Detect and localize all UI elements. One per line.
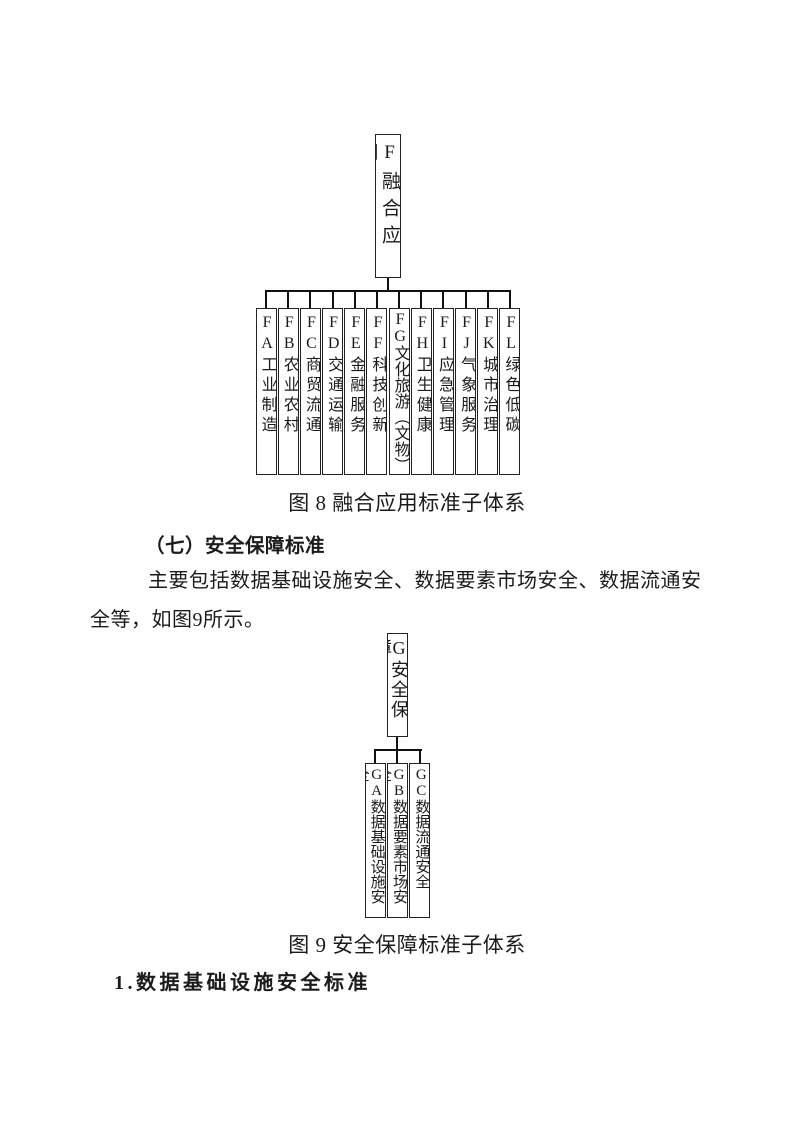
connector-line [396, 749, 398, 763]
connector-line [309, 290, 311, 308]
figure9-root-box: G安全保障 [387, 633, 408, 737]
figure8-branch: FA工业制造 [255, 290, 277, 475]
figure8-branch: FG文化旅游（文物） [388, 290, 410, 475]
figure8-child-box: FB农业农村 [278, 308, 299, 475]
figure9-children-row: GA数据基础设施安全 GB数据要素市场安全 GC数据流通安全 [364, 749, 431, 918]
figure8-diagram: F融合应用 FA工业制造 FB农业农村 FC商贸流通 FD交通运输 FE金融服务… [255, 134, 521, 475]
figure8-branch: FD交通运输 [322, 290, 344, 475]
connector-line [420, 290, 422, 308]
figure8-branch: FE金融服务 [344, 290, 366, 475]
connector-line [287, 290, 289, 308]
figure8-child-box: FF科技创新 [366, 308, 387, 475]
figure9-child-box: GB数据要素市场安全 [387, 763, 408, 918]
figure8-child-box: FD交通运输 [322, 308, 343, 475]
figure8-branch: FB农业农村 [277, 290, 299, 475]
figure8-branch: FI应急管理 [432, 290, 454, 475]
connector-line [265, 290, 267, 308]
connector-line [509, 290, 511, 308]
figure8-child-box: FL绿色低碳 [499, 308, 520, 475]
figure8-child-box: FG文化旅游（文物） [389, 308, 410, 475]
connector-line [465, 290, 467, 308]
figure8-children-row: FA工业制造 FB农业农村 FC商贸流通 FD交通运输 FE金融服务 FF科技创… [255, 290, 521, 475]
figure9-child-box: GA数据基础设施安全 [365, 763, 386, 918]
section-heading: （七）安全保障标准 [145, 529, 325, 558]
figure9-branch: GA数据基础设施安全 [364, 749, 386, 918]
subsection-heading: 1.数据基础设施安全标准 [114, 966, 371, 995]
figure9-branch: GC数据流通安全 [409, 749, 431, 918]
figure8-branch: FK城市治理 [477, 290, 499, 475]
figure8-child-box: FC商贸流通 [300, 308, 321, 475]
connector-line [442, 290, 444, 308]
figure8-child-box: FK城市治理 [477, 308, 498, 475]
figure8-child-box: FJ气象服务 [455, 308, 476, 475]
figure8-branch: FF科技创新 [366, 290, 388, 475]
connector-line [487, 290, 489, 308]
connector-line [398, 290, 400, 308]
connector-line [419, 749, 421, 763]
figure8-branch: FJ气象服务 [455, 290, 477, 475]
paragraph-line: 主要包括数据基础设施安全、数据要素市场安全、数据流通安 [148, 564, 702, 593]
connector-line [376, 290, 378, 308]
figure8-root-box: F融合应用 [375, 134, 401, 278]
connector-line [374, 749, 376, 763]
figure9-child-box: GC数据流通安全 [409, 763, 430, 918]
figure9-diagram: G安全保障 GA数据基础设施安全 GB数据要素市场安全 GC数据流通安全 [364, 633, 431, 918]
figure8-child-box: FE金融服务 [344, 308, 365, 475]
paragraph-line: 全等，如图9所示。 [90, 603, 265, 632]
connector-line [332, 290, 334, 308]
document-page: { "figure8": { "root": "F融合应用", "childre… [0, 0, 794, 1123]
figure8-branch: FH卫生健康 [410, 290, 432, 475]
figure8-branch: FL绿色低碳 [499, 290, 521, 475]
figure8-branch: FC商贸流通 [299, 290, 321, 475]
figure8-caption: 图 8 融合应用标准子体系 [20, 487, 794, 517]
figure8-child-box: FH卫生健康 [411, 308, 432, 475]
figure9-caption: 图 9 安全保障标准子体系 [20, 929, 794, 959]
figure9-branch: GB数据要素市场安全 [386, 749, 408, 918]
connector-line [354, 290, 356, 308]
figure8-child-box: FI应急管理 [433, 308, 454, 475]
figure8-child-box: FA工业制造 [256, 308, 277, 475]
